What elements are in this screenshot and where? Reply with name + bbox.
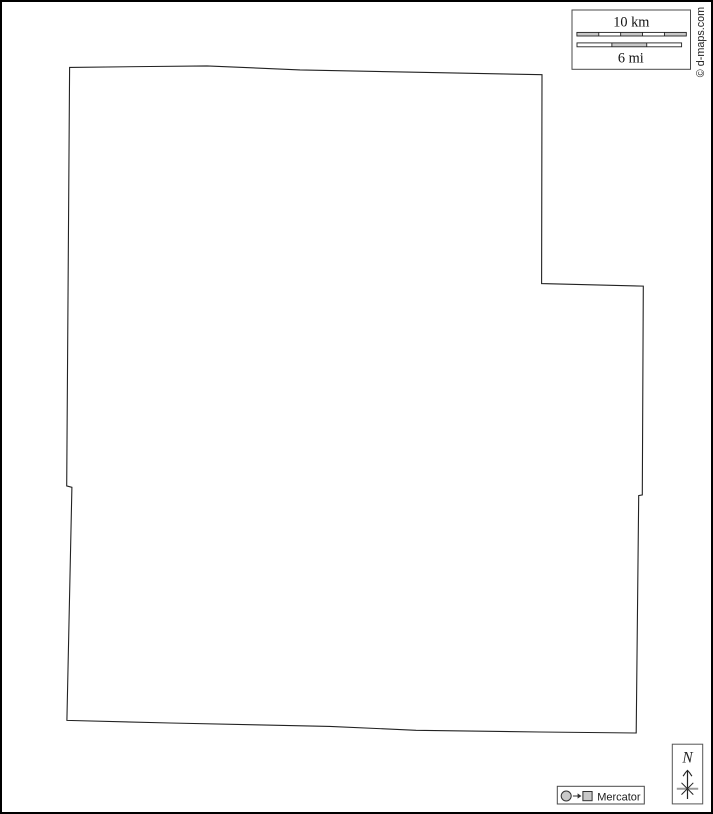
- svg-text:N: N: [681, 750, 694, 767]
- svg-text:6 mi: 6 mi: [618, 50, 644, 66]
- svg-text:© d-maps.com: © d-maps.com: [695, 7, 707, 77]
- svg-text:10 km: 10 km: [613, 15, 649, 31]
- svg-text:Mercator: Mercator: [597, 791, 641, 803]
